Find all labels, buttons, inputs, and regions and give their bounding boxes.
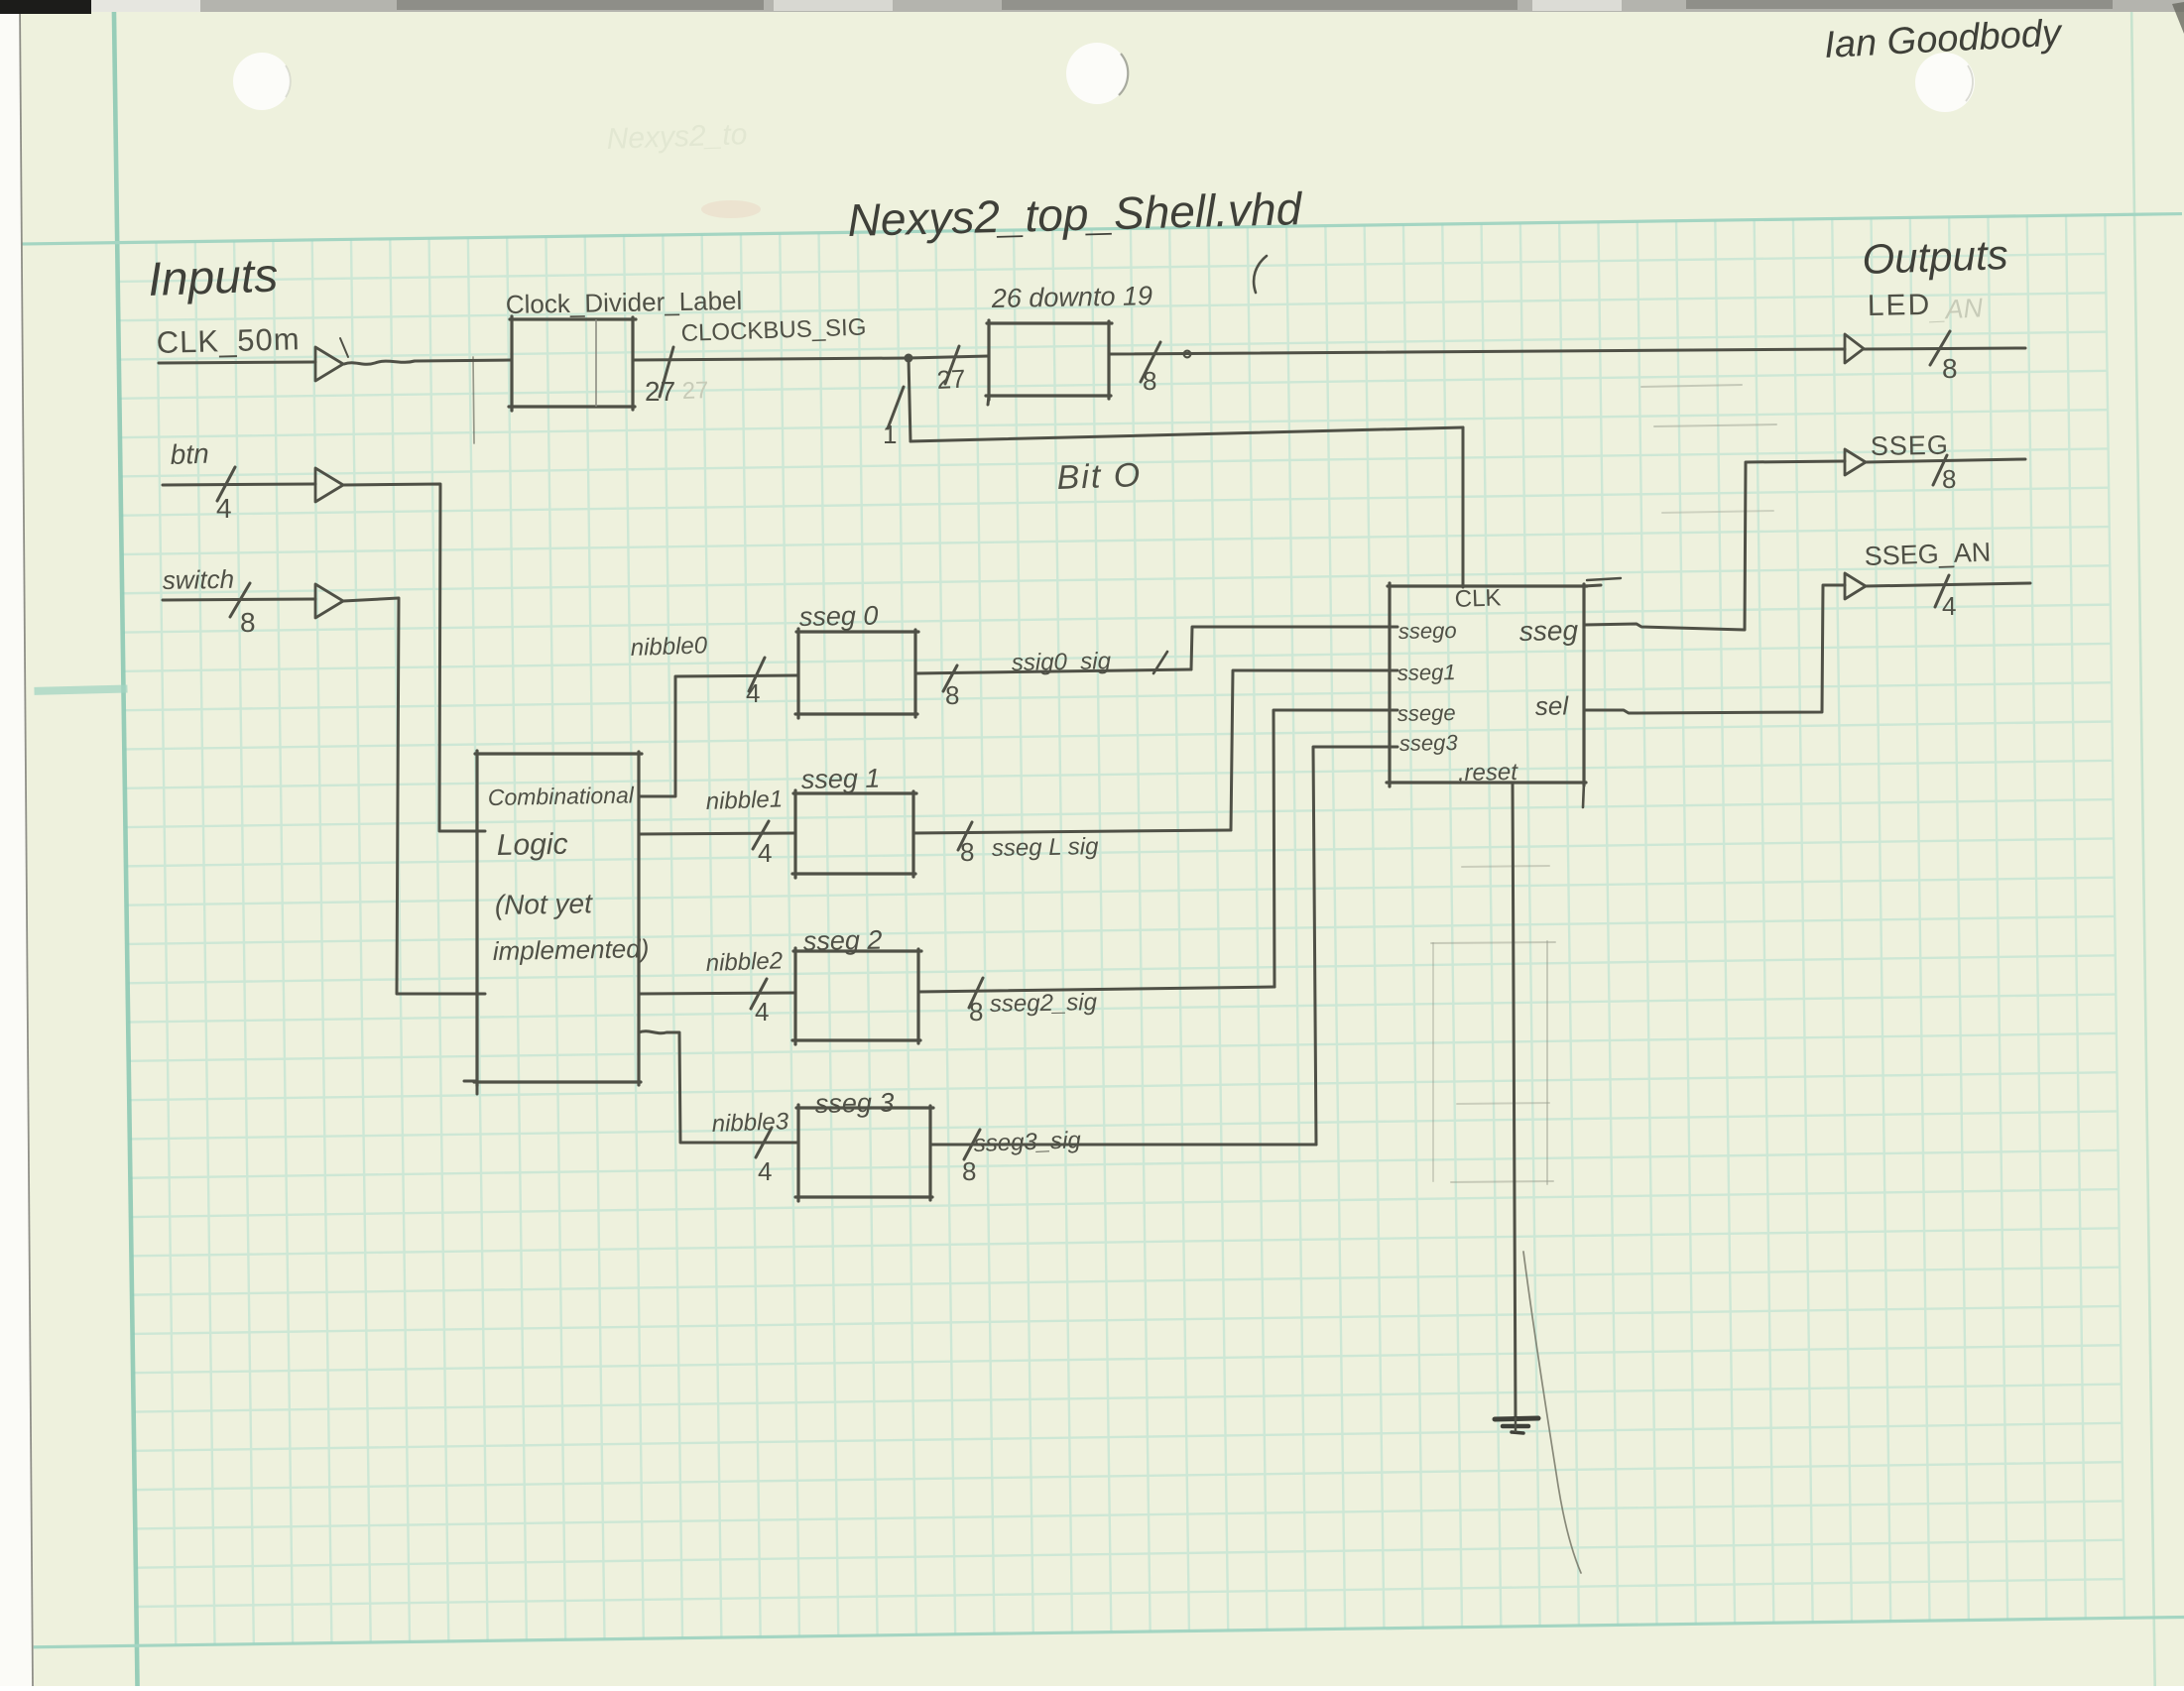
svg-text:sseg3_sig: sseg3_sig [973,1127,1082,1157]
svg-text:4: 4 [216,493,232,524]
svg-text:implemented): implemented) [493,933,650,966]
svg-text:CLK: CLK [1454,584,1502,613]
svg-text:27: 27 [645,376,675,407]
svg-text:Outputs: Outputs [1862,231,2009,283]
svg-text:ssego: ssego [1398,618,1457,644]
svg-text:27: 27 [681,377,709,405]
svg-text:Nexys2_to: Nexys2_to [606,118,748,156]
svg-text:4: 4 [755,997,769,1027]
svg-text:1: 1 [883,420,897,449]
svg-text:sel: sel [1535,690,1570,721]
svg-text:26 downto 19: 26 downto 19 [991,281,1153,313]
svg-text:sseg: sseg [1519,615,1579,647]
svg-text:Clock_Divider_Label: Clock_Divider_Label [506,286,743,319]
svg-text:27: 27 [936,364,966,395]
svg-text:nibble3: nibble3 [711,1108,789,1138]
svg-text:sseg2_sig: sseg2_sig [990,989,1098,1018]
svg-text:8: 8 [945,680,959,710]
svg-text:nibble1: nibble1 [705,785,783,815]
svg-text:Inputs: Inputs [148,249,280,306]
svg-text:sseg 0: sseg 0 [799,601,879,632]
svg-text:nibble0: nibble0 [630,632,708,662]
svg-text:SSEG: SSEG [1871,430,1950,461]
svg-text:(Not yet: (Not yet [495,888,594,920]
svg-text:sseg L sig: sseg L sig [992,833,1100,862]
svg-text:8: 8 [1143,366,1156,396]
svg-text:ssig0_sig: ssig0_sig [1012,648,1112,676]
svg-text:8: 8 [962,1156,976,1186]
svg-text:8: 8 [240,607,256,638]
svg-text:_AN: _AN [1927,293,1985,325]
svg-text:sseg 3: sseg 3 [815,1088,895,1119]
svg-text:8: 8 [960,837,974,867]
svg-text:4: 4 [758,838,772,868]
svg-text:Bit O: Bit O [1056,456,1143,497]
svg-text:8: 8 [969,997,983,1027]
svg-text:sseg3: sseg3 [1399,730,1459,756]
svg-text:sseg 1: sseg 1 [801,764,881,794]
svg-text:btn: btn [170,438,209,470]
svg-text:4: 4 [758,1156,772,1186]
svg-text:Combinational: Combinational [488,782,635,810]
svg-text:8: 8 [1942,464,1956,494]
svg-text:4: 4 [1942,591,1956,621]
svg-text:switch: switch [163,564,235,595]
svg-text:8: 8 [1942,353,1958,384]
svg-text:CLK_50m: CLK_50m [156,321,301,360]
svg-text:SSEG_AN: SSEG_AN [1864,538,1992,571]
svg-text:4: 4 [746,678,760,708]
svg-text:ssege: ssege [1397,700,1456,726]
svg-text:,reset: ,reset [1458,759,1519,786]
svg-text:sseg1: sseg1 [1397,660,1456,685]
svg-text:nibble2: nibble2 [705,947,783,977]
svg-text:Logic: Logic [497,828,568,862]
svg-text:LED: LED [1868,289,1932,322]
